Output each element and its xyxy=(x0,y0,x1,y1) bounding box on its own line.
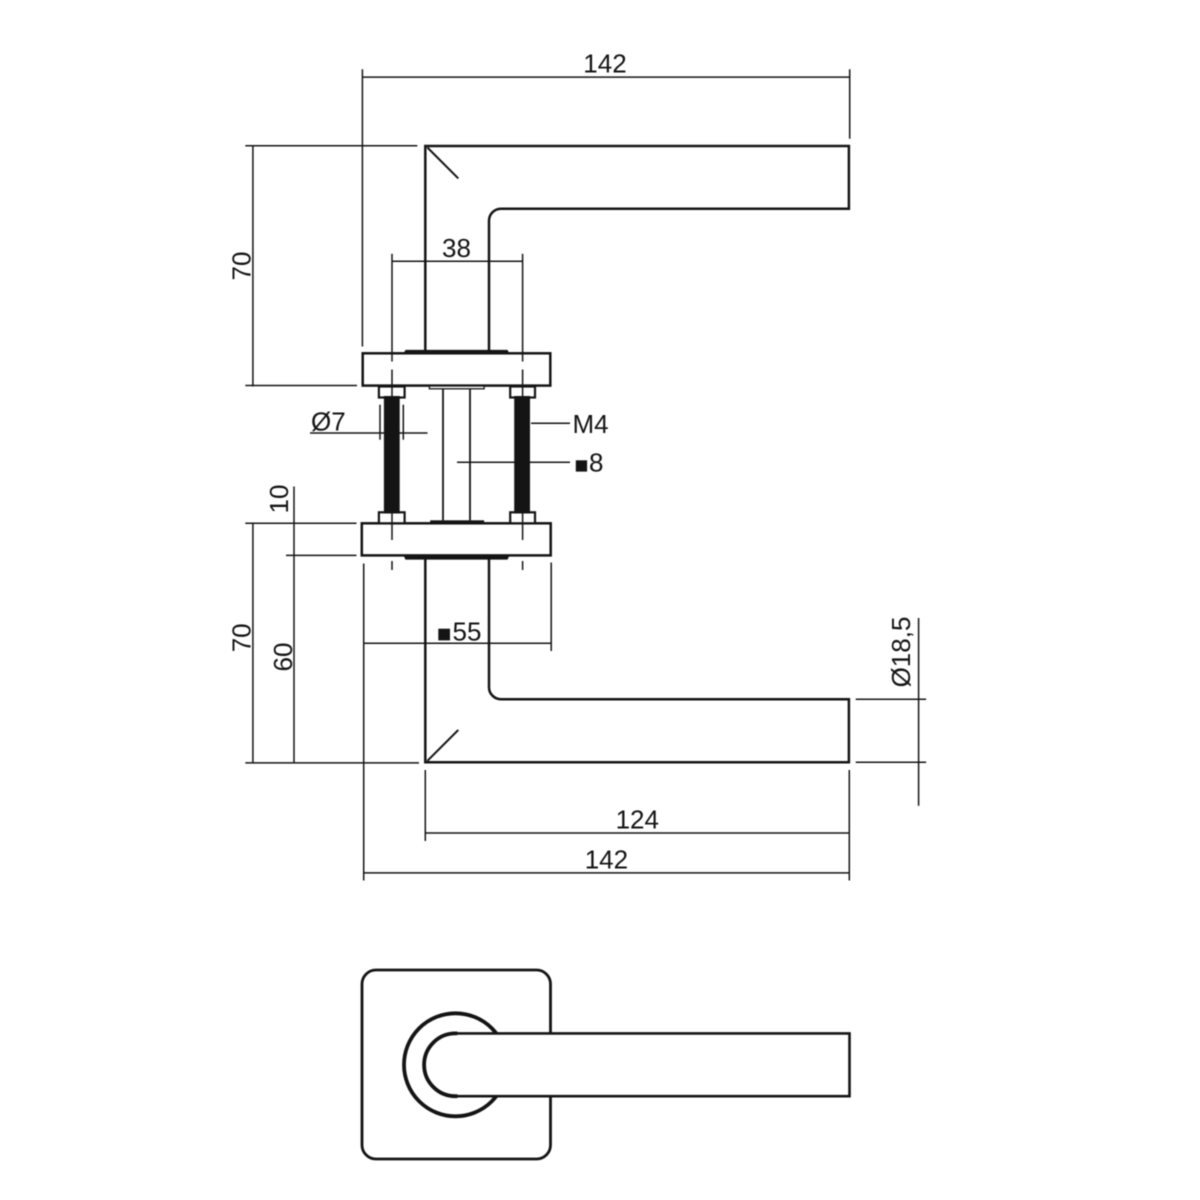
svg-text:M4: M4 xyxy=(573,409,609,439)
svg-text:60: 60 xyxy=(268,643,298,672)
svg-text:Ø18,5: Ø18,5 xyxy=(886,617,916,688)
svg-text:124: 124 xyxy=(616,805,659,835)
svg-text:55: 55 xyxy=(453,616,482,646)
svg-text:38: 38 xyxy=(442,233,471,263)
svg-text:Ø7: Ø7 xyxy=(311,407,346,437)
svg-text:8: 8 xyxy=(589,447,603,477)
svg-text:10: 10 xyxy=(264,485,294,514)
svg-text:142: 142 xyxy=(585,844,628,874)
svg-text:142: 142 xyxy=(583,49,626,79)
svg-text:70: 70 xyxy=(227,623,257,652)
svg-text:70: 70 xyxy=(227,252,257,281)
